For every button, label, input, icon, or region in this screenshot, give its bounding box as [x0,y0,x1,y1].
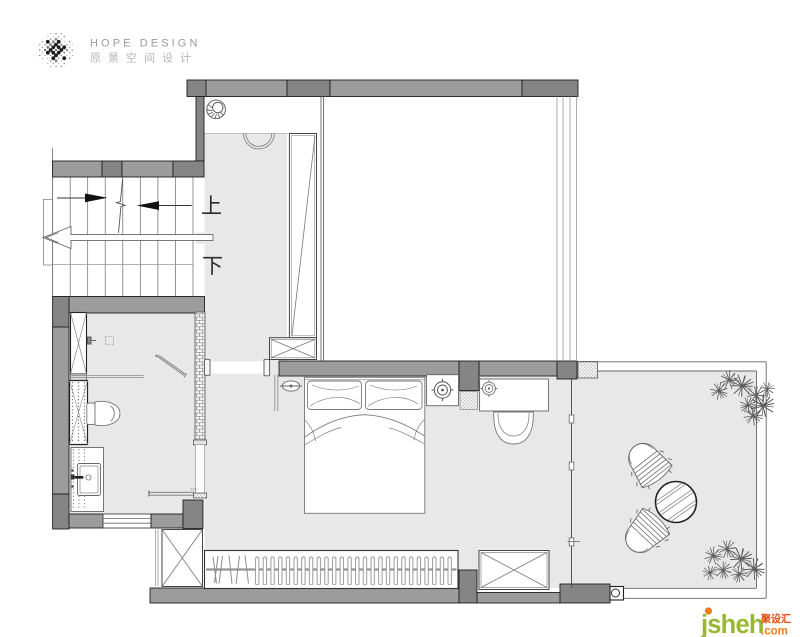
svg-text:下: 下 [202,255,223,278]
svg-text:原景空间设计: 原景空间设计 [90,51,198,65]
svg-text:.com: .com [761,626,788,637]
svg-text:jsheh: jsheh [700,611,764,637]
svg-text:HOPE DESIGN: HOPE DESIGN [90,38,201,50]
svg-text:700: 700 [190,487,198,492]
svg-text:上: 上 [201,195,222,218]
svg-text:聚设汇: 聚设汇 [760,613,791,626]
